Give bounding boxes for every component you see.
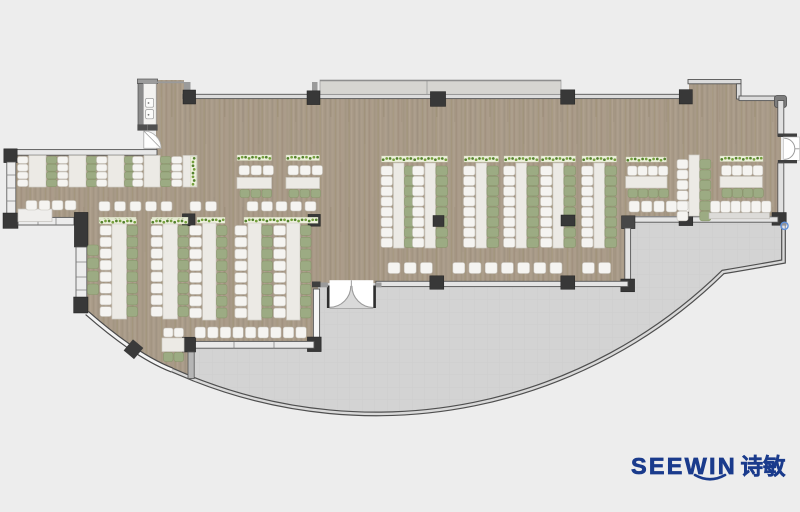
svg-text:诗敏: 诗敏 bbox=[741, 454, 787, 480]
svg-text:SEEWIN: SEEWIN bbox=[631, 453, 737, 479]
